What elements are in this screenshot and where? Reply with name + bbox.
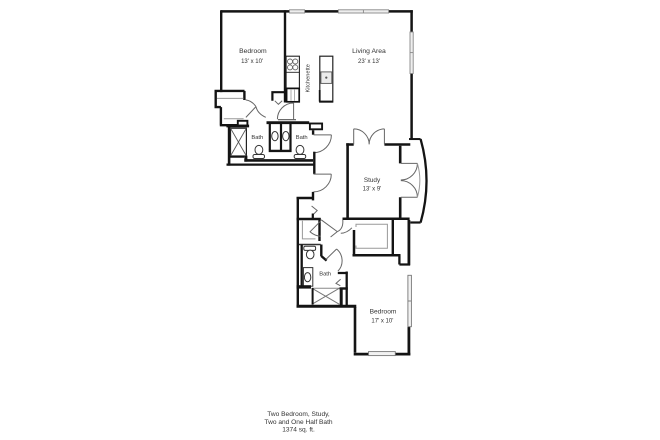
svg-text:Two Bedroom, Study,: Two Bedroom, Study,: [267, 411, 330, 418]
svg-text:Kitchenette: Kitchenette: [305, 64, 311, 92]
svg-text:Living Area: Living Area: [352, 48, 386, 55]
svg-text:Bath: Bath: [296, 135, 308, 141]
svg-text:Bath: Bath: [251, 135, 263, 141]
svg-text:Bedroom: Bedroom: [370, 309, 397, 316]
svg-text:Bedroom: Bedroom: [239, 48, 267, 55]
svg-text:Two and One Half Bath: Two and One Half Bath: [264, 419, 333, 426]
svg-text:23' x 13': 23' x 13': [358, 59, 380, 65]
svg-text:13' x 9': 13' x 9': [363, 186, 382, 192]
svg-text:Bath: Bath: [319, 272, 331, 278]
svg-text:17' x 10': 17' x 10': [371, 318, 393, 324]
svg-text:1374 sq. ft.: 1374 sq. ft.: [282, 426, 315, 433]
svg-text:Study: Study: [364, 177, 381, 184]
svg-text:13' x 10': 13' x 10': [241, 59, 263, 65]
